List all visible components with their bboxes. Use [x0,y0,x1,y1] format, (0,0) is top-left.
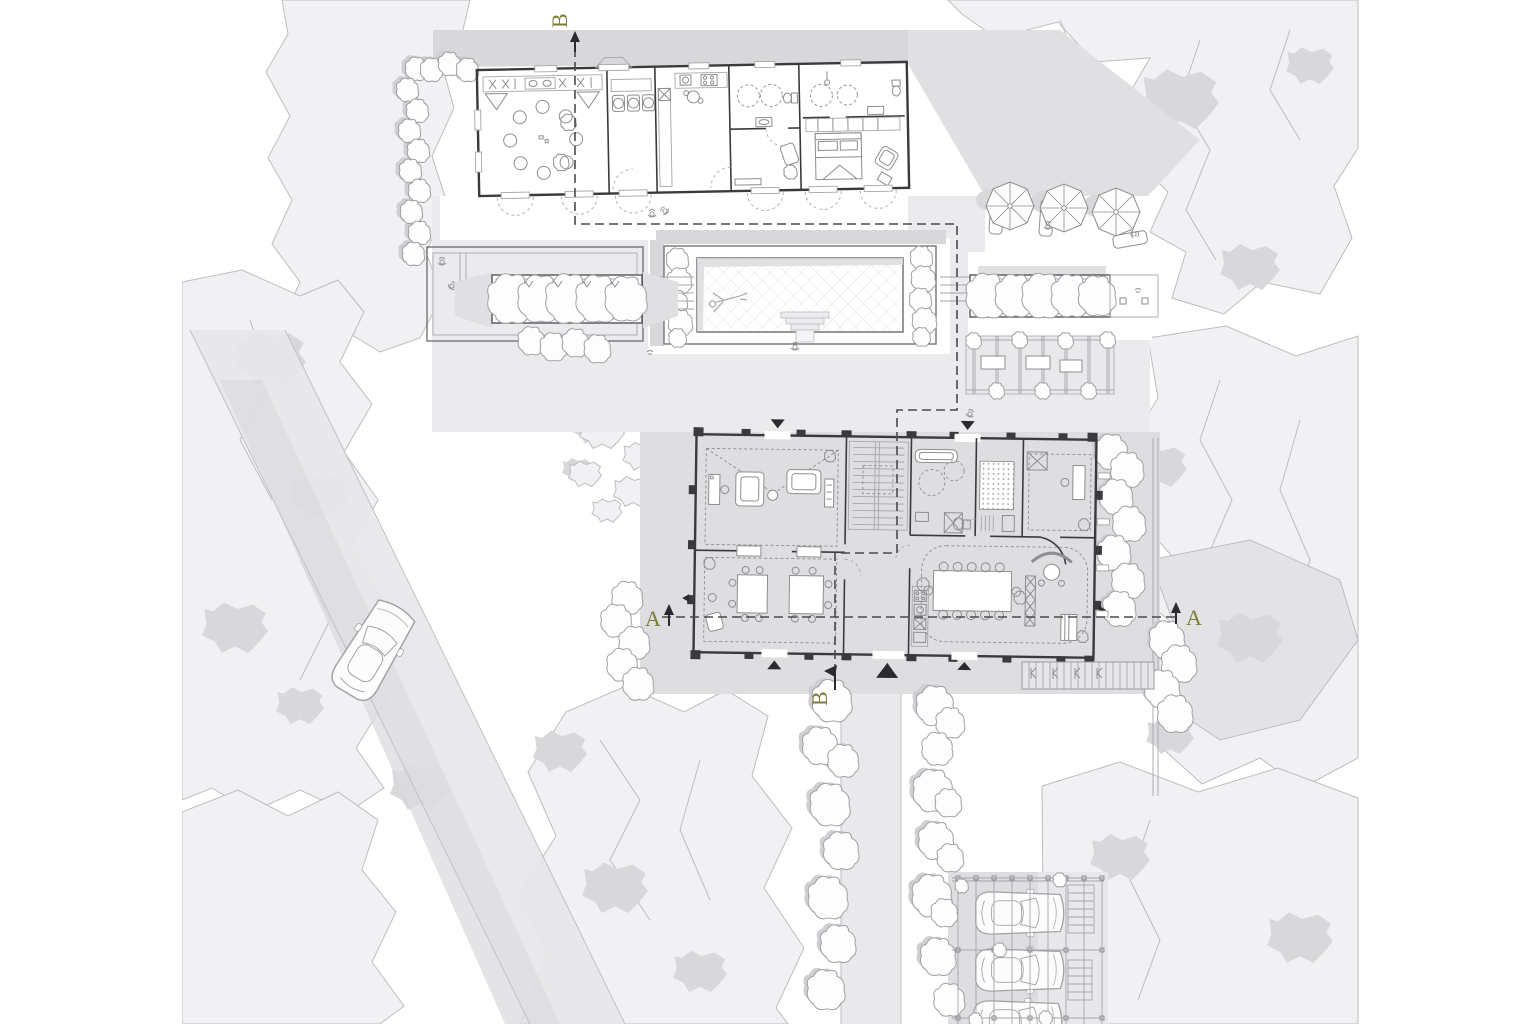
double-bed [815,133,862,180]
section-label-a-right: A [1186,605,1202,630]
parked-car-icon [976,889,1064,937]
section-label-a-left: A [645,606,661,631]
swimming-pool-group [634,230,972,350]
section-label-b-bottom: B [807,691,832,706]
annex-shadow-band [433,30,908,67]
entry-steps-strip [1022,662,1154,689]
parked-car-icon [976,946,1064,994]
parasol-icon [1040,184,1088,232]
west-planter [488,274,648,324]
parasol-icon [986,182,1034,230]
parasol-icon [1092,188,1140,236]
site-plan-canvas: B B A A [0,0,1536,1024]
dining-table [933,571,1012,612]
architectural-site-plan-screenshot: B B A A [0,0,1536,1024]
pergola [966,332,1116,400]
section-label-b-top: B [547,13,572,28]
